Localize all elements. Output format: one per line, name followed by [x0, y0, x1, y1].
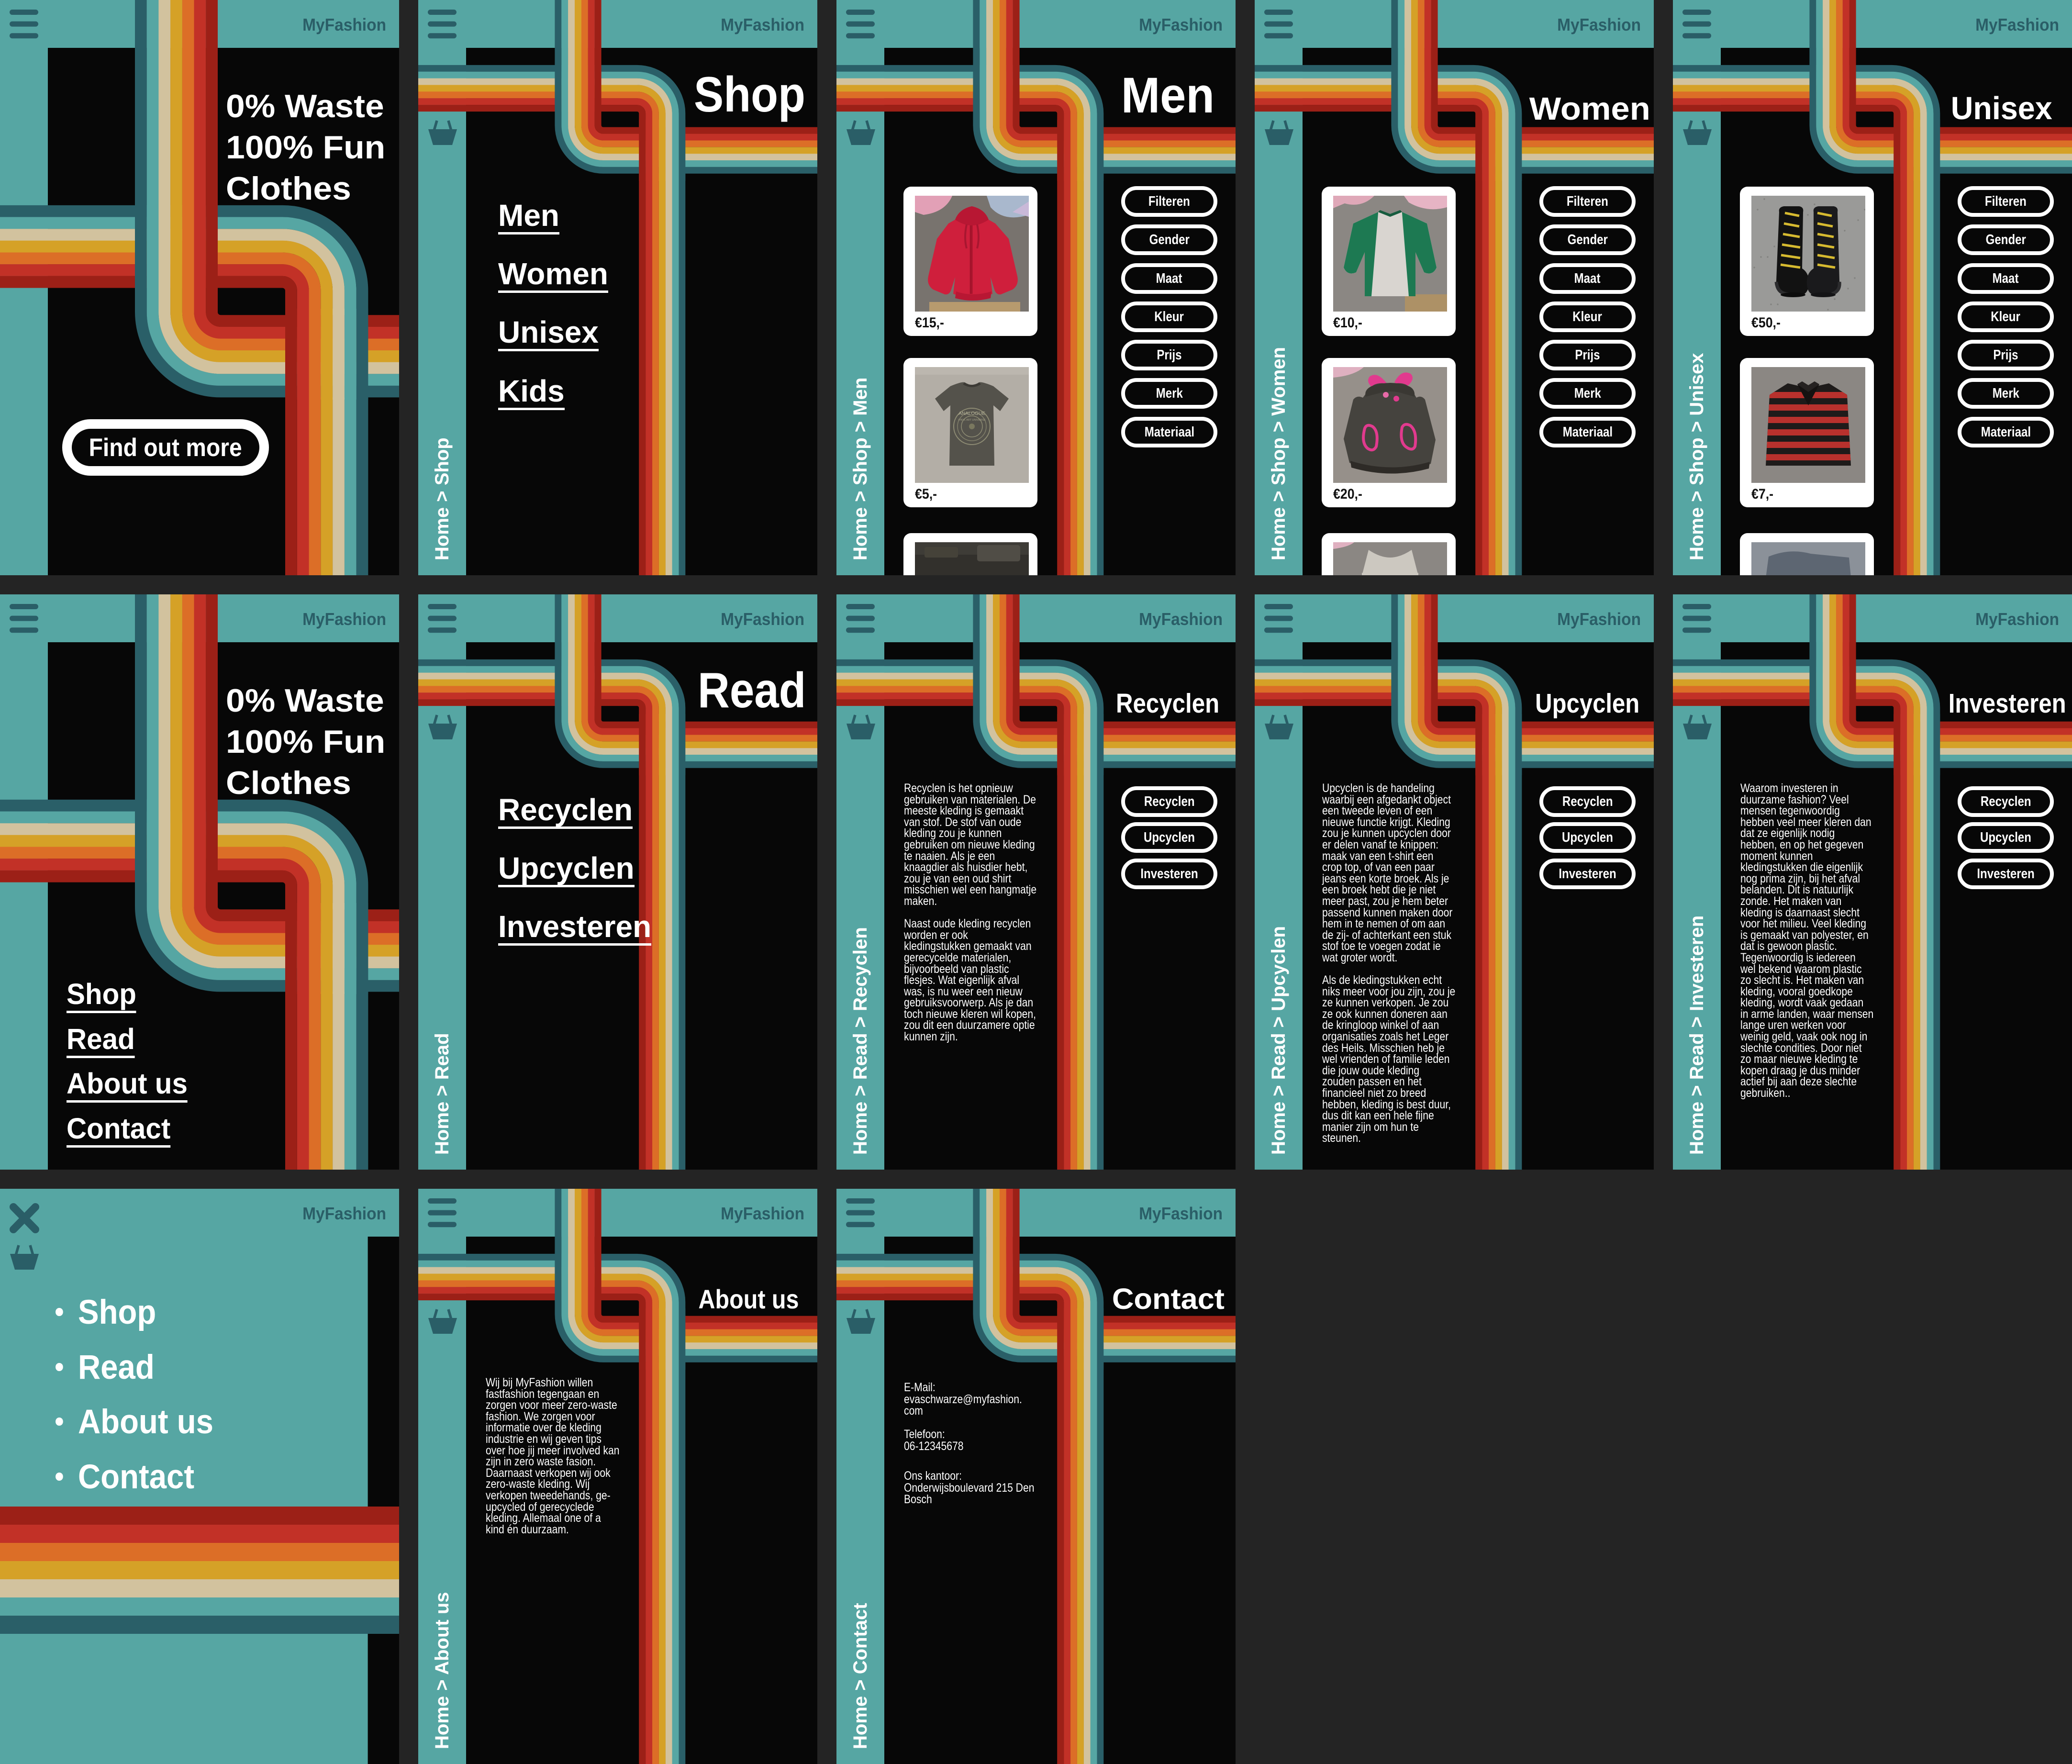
svg-text:ANALOGUE: ANALOGUE: [958, 411, 985, 416]
svg-text:VINYL ART UNIVERSE: VINYL ART UNIVERSE: [958, 419, 986, 422]
